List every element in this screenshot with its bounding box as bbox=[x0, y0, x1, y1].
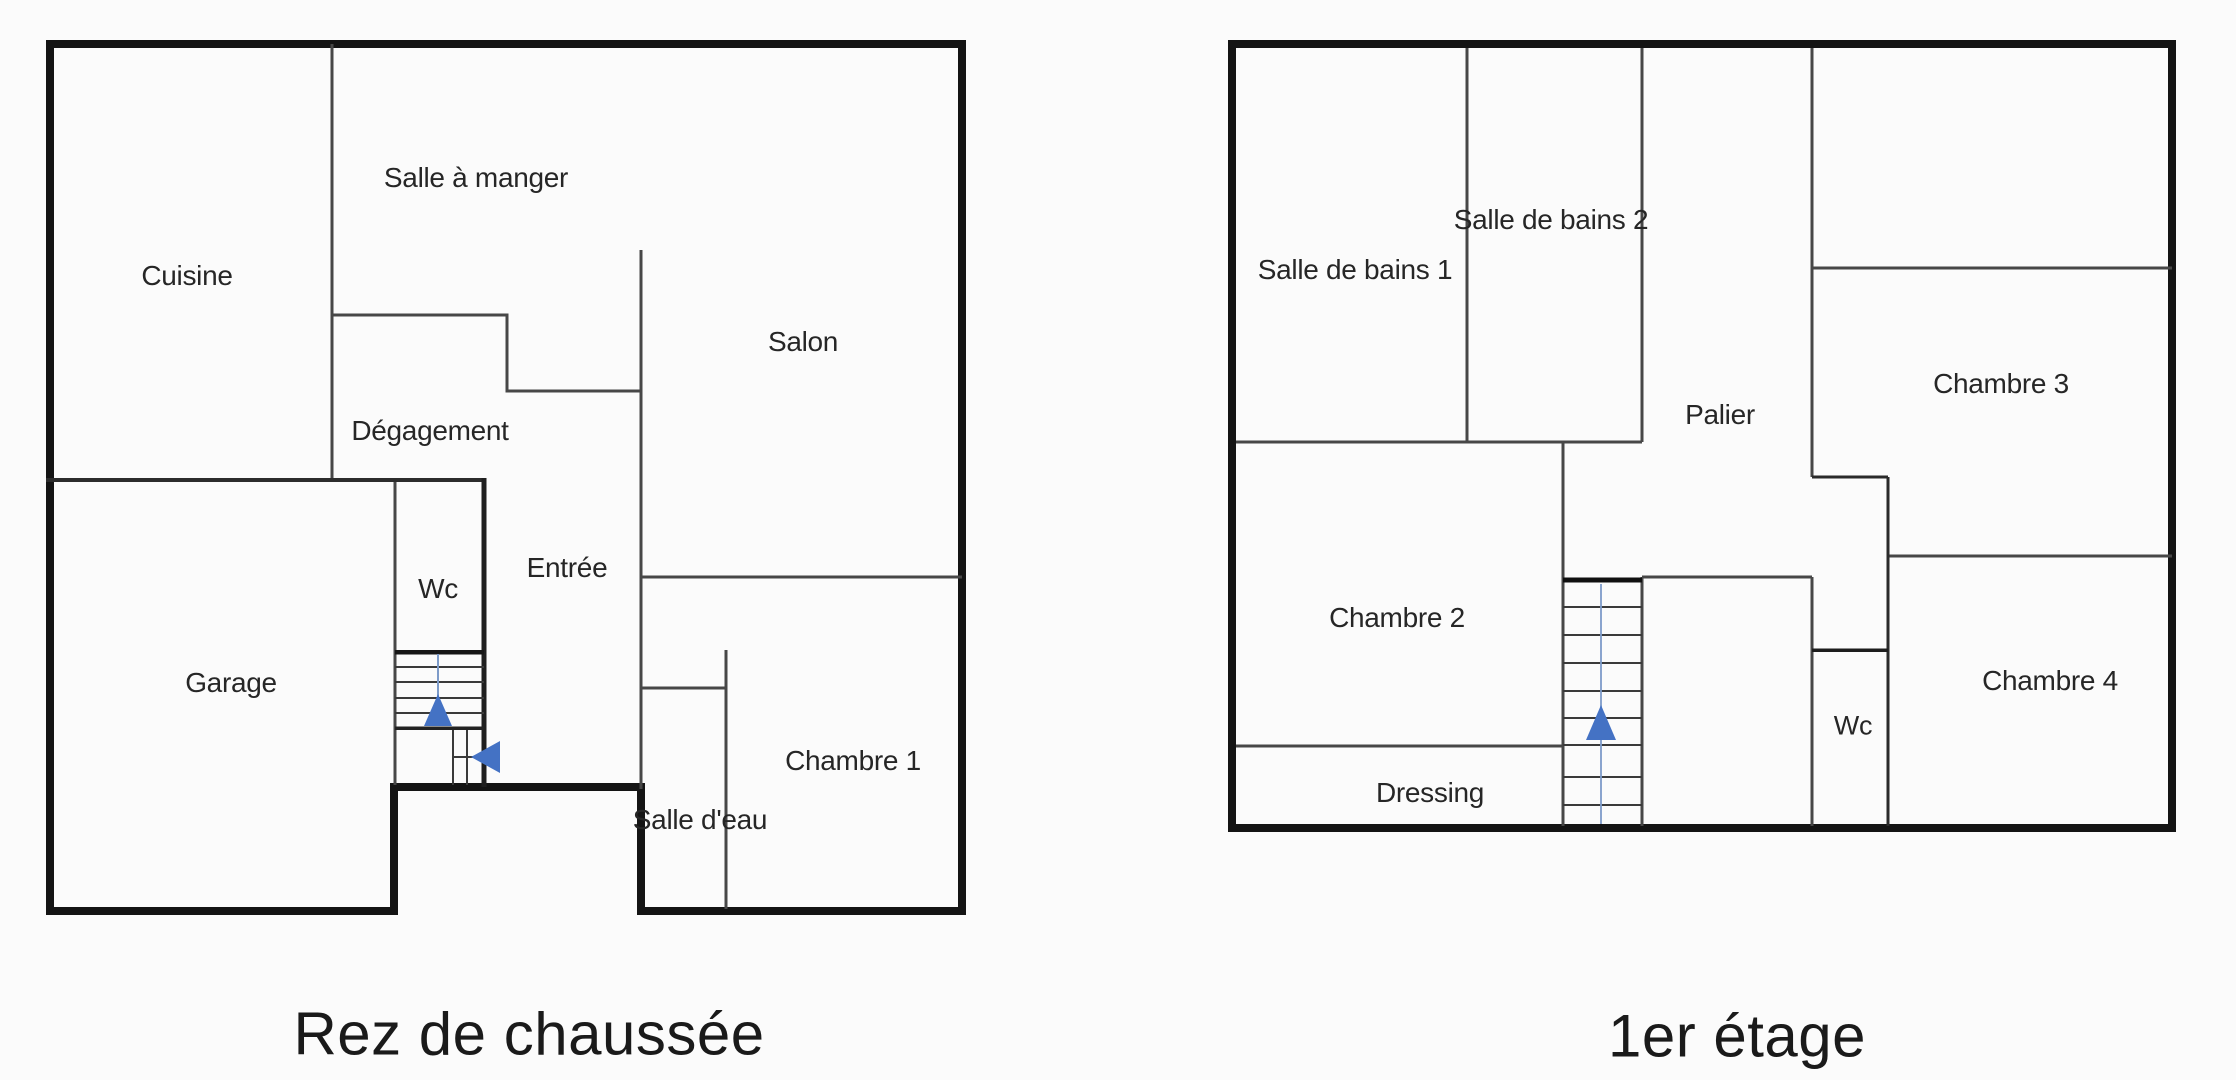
room-label-chambre-1: Chambre 1 bbox=[785, 745, 921, 777]
room-label-salle-d-eau: Salle d'eau bbox=[633, 804, 767, 836]
room-label-wc-ground: Wc bbox=[418, 573, 458, 605]
room-label-garage: Garage bbox=[185, 667, 277, 699]
room-label-chambre-3: Chambre 3 bbox=[1933, 368, 2069, 400]
room-label-salon: Salon bbox=[768, 326, 838, 358]
room-label-dressing: Dressing bbox=[1376, 777, 1484, 809]
room-label-wc-first: Wc bbox=[1834, 711, 1872, 742]
first-floor-title: 1er étage bbox=[1608, 1002, 1866, 1071]
first-floor-plan bbox=[1232, 44, 2172, 828]
floorplan-drawing bbox=[0, 0, 2236, 1080]
room-label-palier: Palier bbox=[1685, 399, 1755, 431]
room-label-chambre-4: Chambre 4 bbox=[1982, 665, 2118, 697]
first-stairs bbox=[1563, 580, 1642, 805]
wall-degagement-step bbox=[332, 315, 641, 391]
room-label-salle-de-bains-2: Salle de bains 2 bbox=[1454, 204, 1648, 236]
room-label-degagement: Dégagement bbox=[351, 415, 508, 447]
ground-floor-title: Rez de chaussée bbox=[293, 1000, 764, 1069]
stair-up-arrow-icon bbox=[1586, 705, 1616, 740]
room-label-salle-a-manger: Salle à manger bbox=[384, 162, 568, 194]
first-outer-walls bbox=[1232, 44, 2172, 828]
room-label-chambre-2: Chambre 2 bbox=[1329, 602, 1465, 634]
first-stair-direction bbox=[1586, 584, 1616, 824]
room-label-entree: Entrée bbox=[527, 552, 608, 584]
first-inner-walls bbox=[1236, 48, 2172, 826]
first-outer-wall-outline bbox=[1232, 44, 2172, 828]
room-label-cuisine: Cuisine bbox=[141, 260, 232, 292]
floor-plans-canvas: Salle à manger Cuisine Salon Dégagement … bbox=[0, 0, 2236, 1080]
room-label-salle-de-bains-1: Salle de bains 1 bbox=[1258, 254, 1452, 286]
